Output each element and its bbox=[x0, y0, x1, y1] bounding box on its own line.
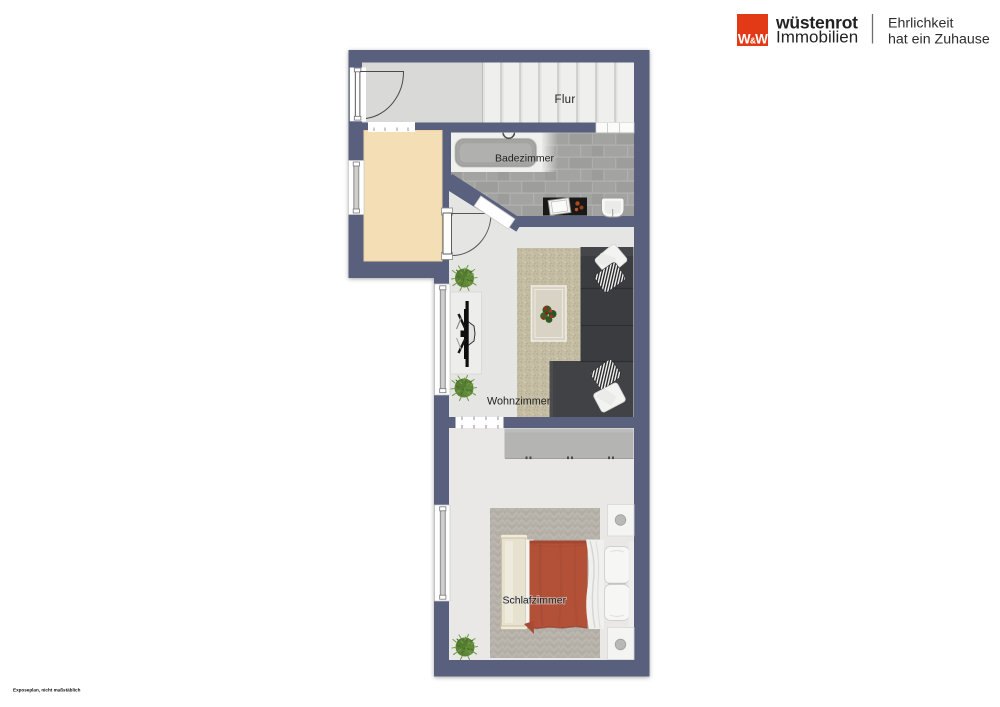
svg-text:Immobilien: Immobilien bbox=[776, 28, 858, 47]
svg-text:Badezimmer: Badezimmer bbox=[495, 153, 554, 165]
svg-text:Exposeplan, nicht maßstäblich: Exposeplan, nicht maßstäblich bbox=[13, 688, 81, 693]
svg-text:hat ein Zuhause: hat ein Zuhause bbox=[888, 32, 990, 48]
svg-text:Schlafzimmer: Schlafzimmer bbox=[503, 595, 567, 607]
svg-text:Flur: Flur bbox=[555, 94, 576, 106]
svg-text:Wohnzimmer: Wohnzimmer bbox=[487, 396, 551, 408]
svg-text:Ehrlichkeit: Ehrlichkeit bbox=[888, 16, 954, 32]
